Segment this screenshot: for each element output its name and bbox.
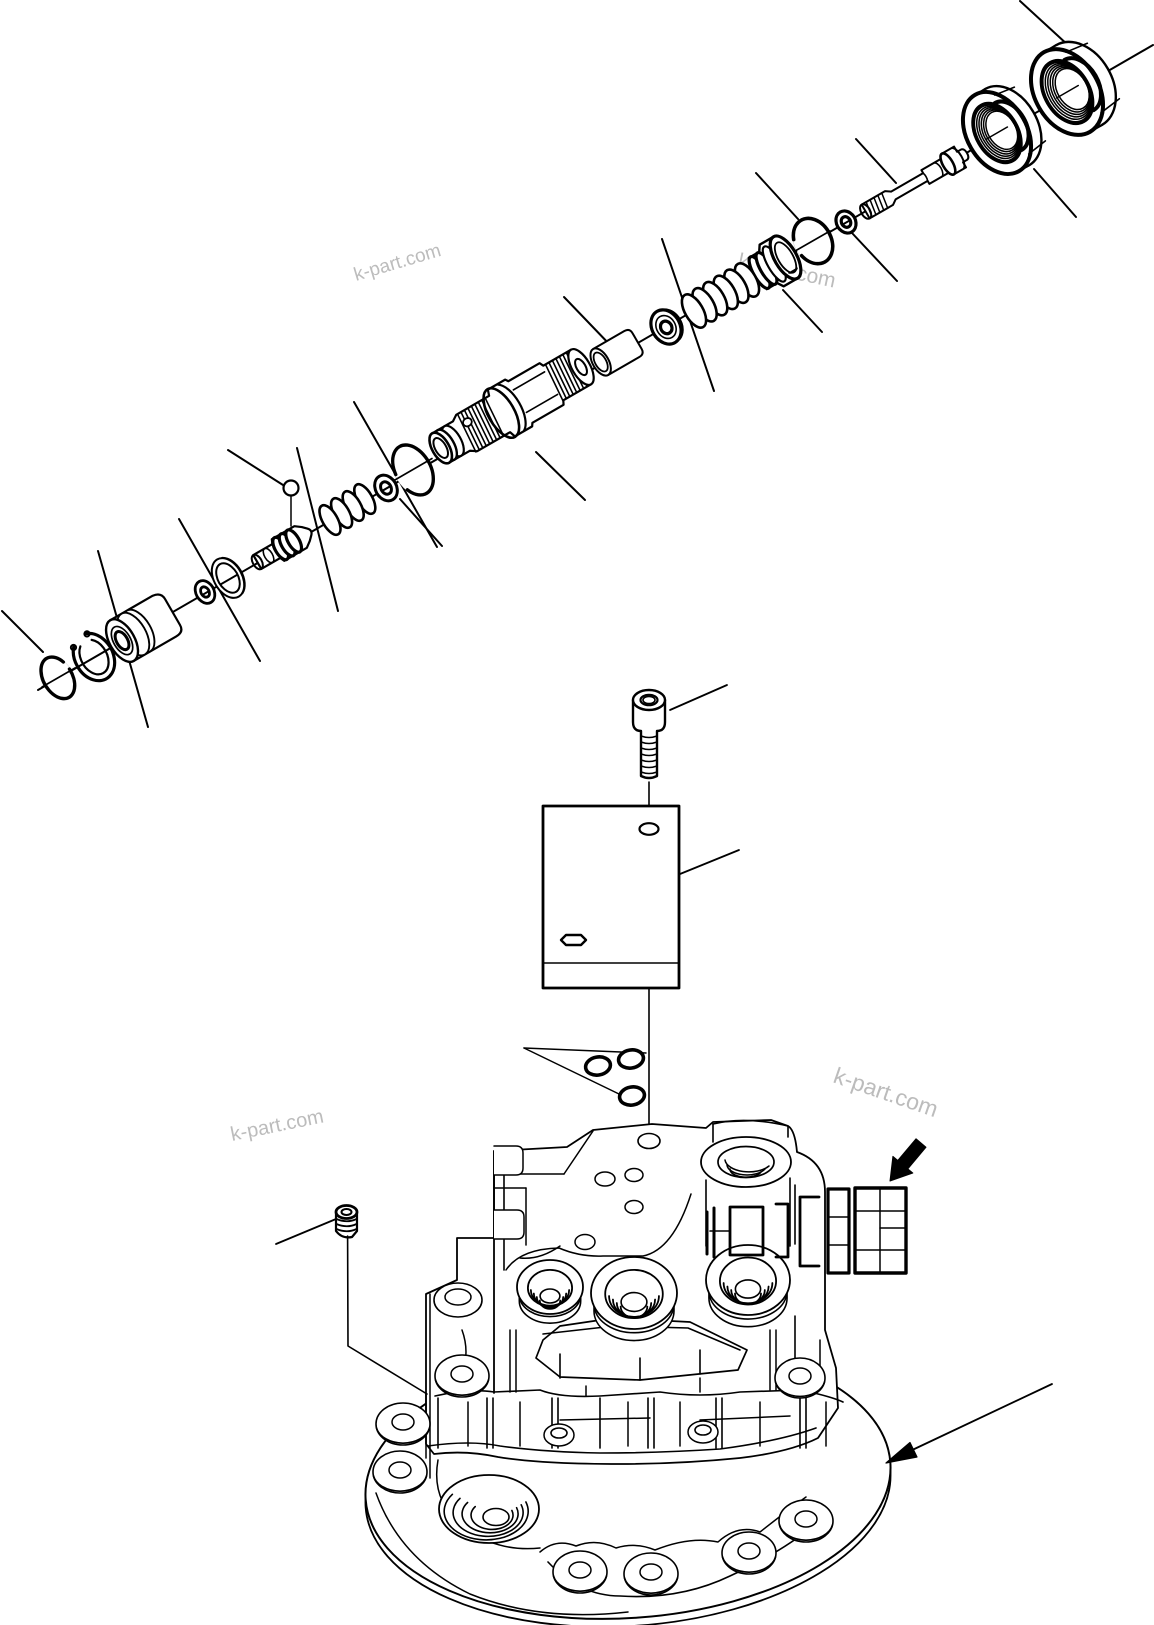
svg-text:k-part.com: k-part.com [351, 240, 443, 286]
svg-text:k-part.com: k-part.com [830, 1062, 941, 1122]
svg-text:k-part.com: k-part.com [229, 1106, 326, 1146]
